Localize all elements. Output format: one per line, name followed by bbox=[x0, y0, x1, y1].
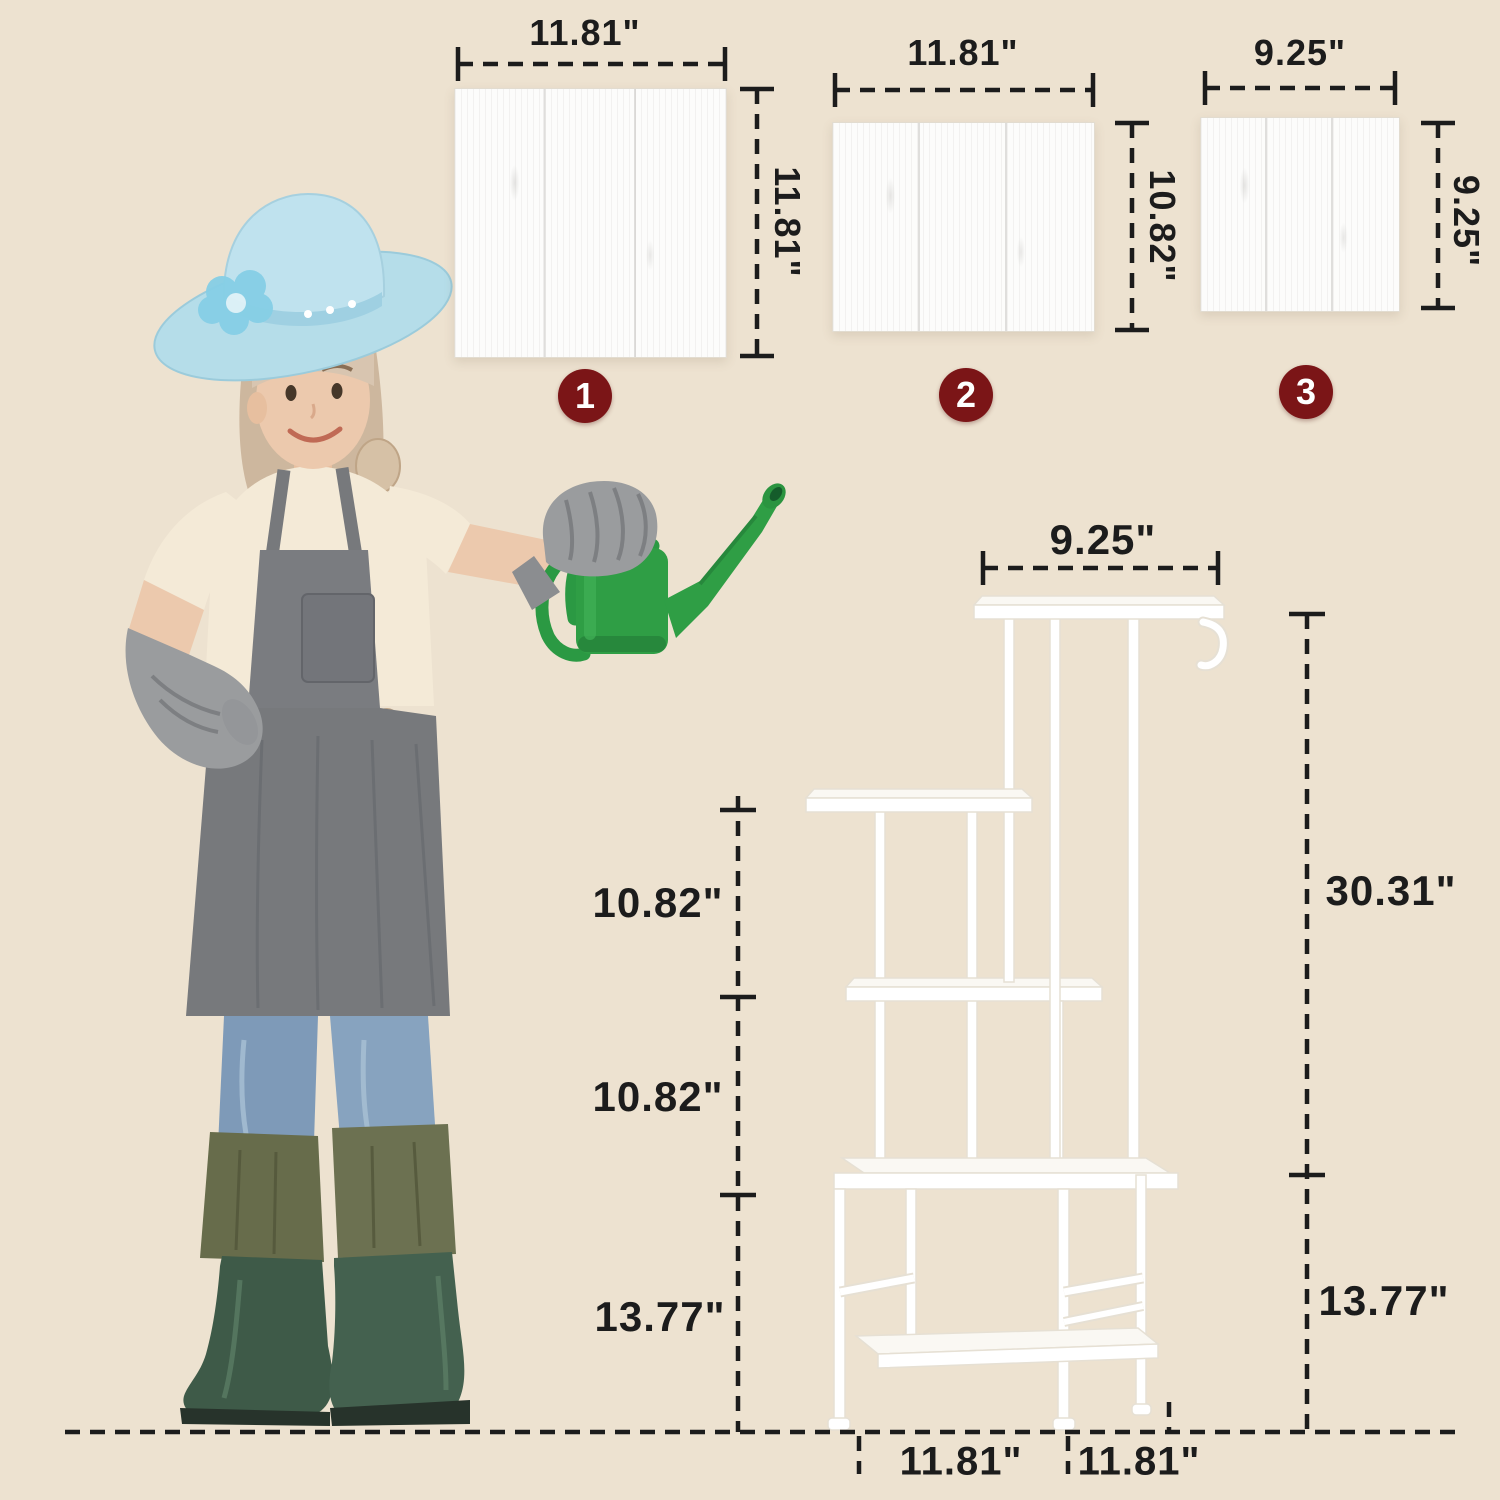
ear bbox=[247, 392, 267, 424]
stand-left-segment-3-label: 13.77" bbox=[594, 1293, 725, 1341]
stand-left-segment-1-label: 10.82" bbox=[592, 879, 723, 927]
panel-3-width-label: 9.25" bbox=[1254, 32, 1346, 74]
plant-stand-illustration bbox=[806, 596, 1224, 1430]
shelf-panel-2 bbox=[832, 122, 1095, 332]
watering-can-illustration bbox=[512, 479, 790, 655]
panel-2-height-label: 10.82" bbox=[1141, 169, 1183, 282]
shelf-panel-1 bbox=[454, 88, 727, 358]
sun-hat bbox=[142, 194, 463, 405]
panel-2-badge: 2 bbox=[939, 368, 993, 422]
product-dimension-image: 11.81" 11.81" 11.81" 10.82" 9.25" 9.25" … bbox=[0, 0, 1500, 1500]
stand-upper-height-label: 30.31" bbox=[1325, 867, 1456, 915]
boot-covers bbox=[200, 1124, 456, 1262]
stand-left-segment-2-label: 10.82" bbox=[592, 1073, 723, 1121]
panel-3-badge: 3 bbox=[1279, 365, 1333, 419]
apron-pocket bbox=[302, 594, 374, 682]
panel-1-height-label: 11.81" bbox=[766, 166, 808, 277]
shelf-panel-3 bbox=[1200, 117, 1400, 312]
stand-bottom-depth-label: 11.81" bbox=[900, 1440, 1023, 1485]
stand-lower-height-label: 13.77" bbox=[1318, 1277, 1449, 1325]
watering-can-spout bbox=[664, 492, 780, 638]
rubber-boots bbox=[180, 1252, 470, 1426]
stand-top-width-label: 9.25" bbox=[1050, 516, 1157, 564]
panel-1-badge: 1 bbox=[558, 369, 612, 423]
panel-1-width-label: 11.81" bbox=[529, 12, 640, 54]
panel-2-width-label: 11.81" bbox=[907, 32, 1018, 74]
stand-bottom-width-label: 11.81" bbox=[1078, 1440, 1201, 1485]
woman-illustration bbox=[126, 194, 556, 1426]
panel-3-height-label: 9.25" bbox=[1445, 175, 1487, 267]
